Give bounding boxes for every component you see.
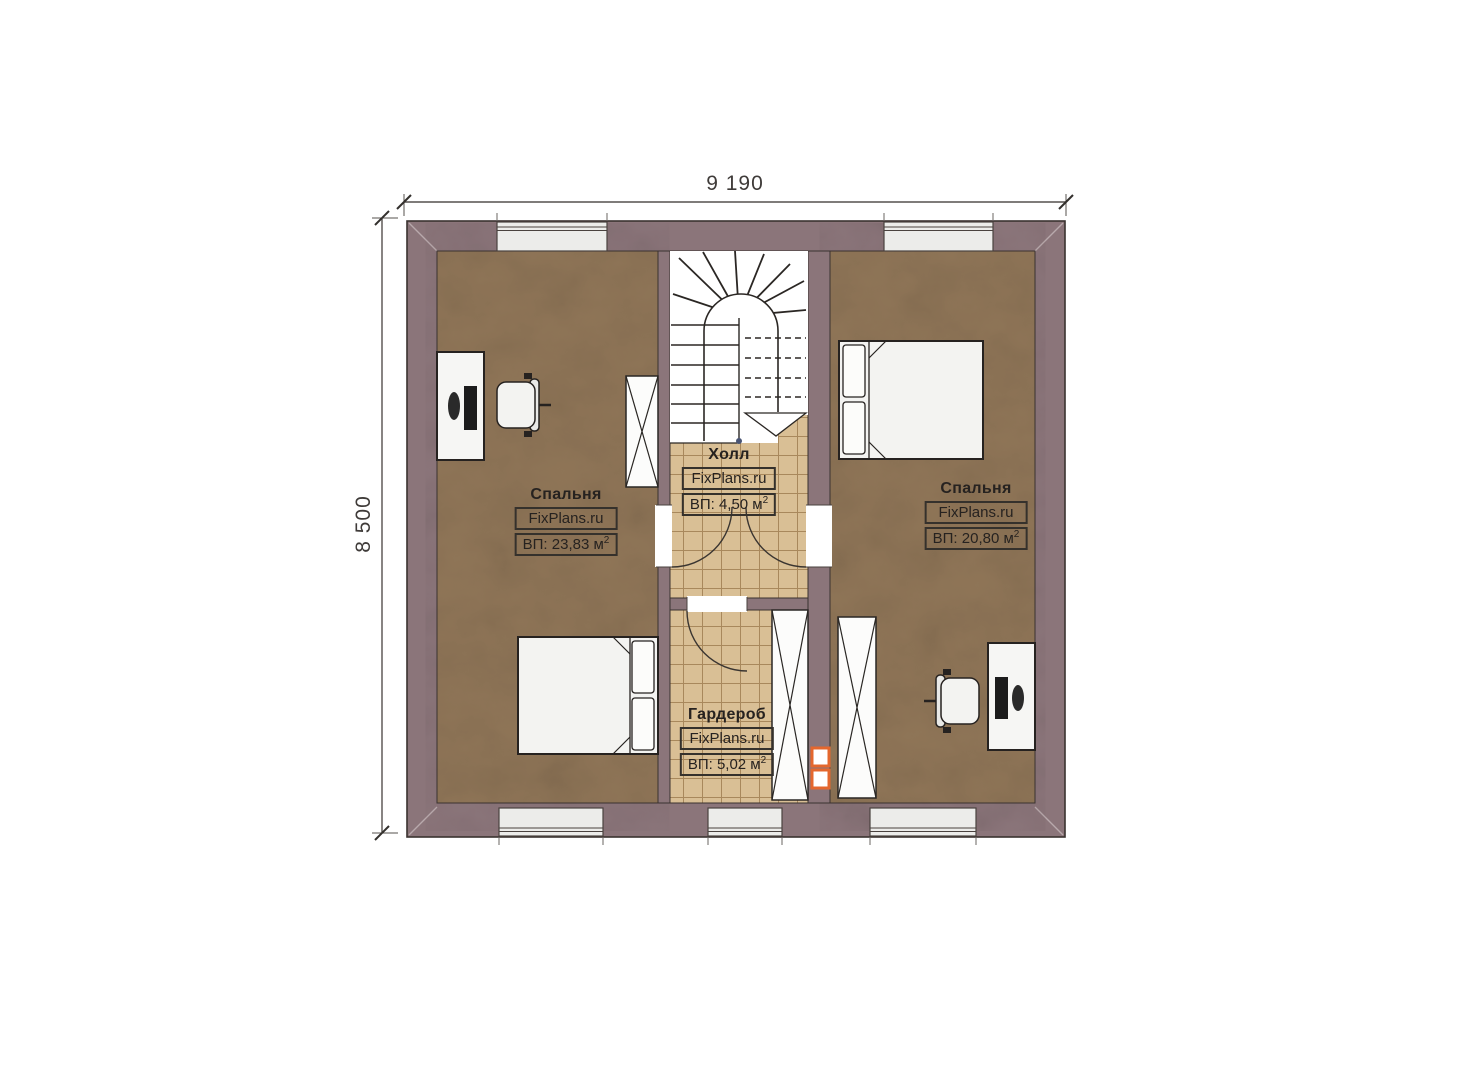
monitor-right (995, 677, 1008, 719)
room-area-badge: ВП: 4,50 м2 (682, 493, 776, 516)
closet-right-bedroom (838, 617, 876, 798)
room-label-bedroom-left: Спальня FixPlans.ru ВП: 23,83 м2 (515, 486, 618, 556)
keyboard-right (1012, 685, 1024, 711)
room-area-badge: ВП: 23,83 м2 (515, 533, 618, 556)
floor-plan-drawing (0, 0, 1473, 1080)
room-name: Спальня (925, 480, 1028, 498)
dimension-width-label: 9 190 (706, 172, 764, 196)
room-name: Холл (682, 446, 776, 464)
monitor-left (464, 386, 477, 430)
window-bottom-right (870, 808, 976, 845)
room-name: Спальня (515, 486, 618, 504)
stair-start-dot (736, 438, 742, 444)
watermark-badge: FixPlans.ru (682, 467, 776, 490)
room-area-badge: ВП: 20,80 м2 (925, 527, 1028, 550)
window-bottom-left (499, 808, 603, 845)
chair-seat (941, 678, 979, 724)
desk-right-bedroom (988, 643, 1035, 750)
closet-left-bedroom (626, 376, 658, 487)
bed-left-bedroom (518, 637, 658, 754)
dimension-height-label: 8 500 (352, 495, 376, 553)
floor-plan-page: 9 190 8 500 Спальня FixPlans.ru ВП: 23,8… (0, 0, 1473, 1080)
closet-wardrobe-room (772, 610, 808, 800)
staircase (670, 251, 808, 444)
desk-left-bedroom (437, 352, 484, 460)
window-top-left (497, 213, 607, 251)
chair-seat (497, 382, 535, 428)
watermark-badge: FixPlans.ru (925, 501, 1028, 524)
keyboard-left (448, 392, 460, 420)
room-name: Гардероб (680, 706, 774, 724)
dimension-width-line (397, 194, 1073, 216)
watermark-badge: FixPlans.ru (515, 507, 618, 530)
room-label-wardrobe: Гардероб FixPlans.ru ВП: 5,02 м2 (680, 706, 774, 776)
bed-right-bedroom (839, 341, 983, 459)
room-label-hall: Холл FixPlans.ru ВП: 4,50 м2 (682, 446, 776, 516)
room-area-badge: ВП: 5,02 м2 (680, 753, 774, 776)
window-top-right (884, 213, 993, 251)
watermark-badge: FixPlans.ru (680, 727, 774, 750)
room-label-bedroom-right: Спальня FixPlans.ru ВП: 20,80 м2 (925, 480, 1028, 550)
window-bottom-center (708, 808, 782, 845)
